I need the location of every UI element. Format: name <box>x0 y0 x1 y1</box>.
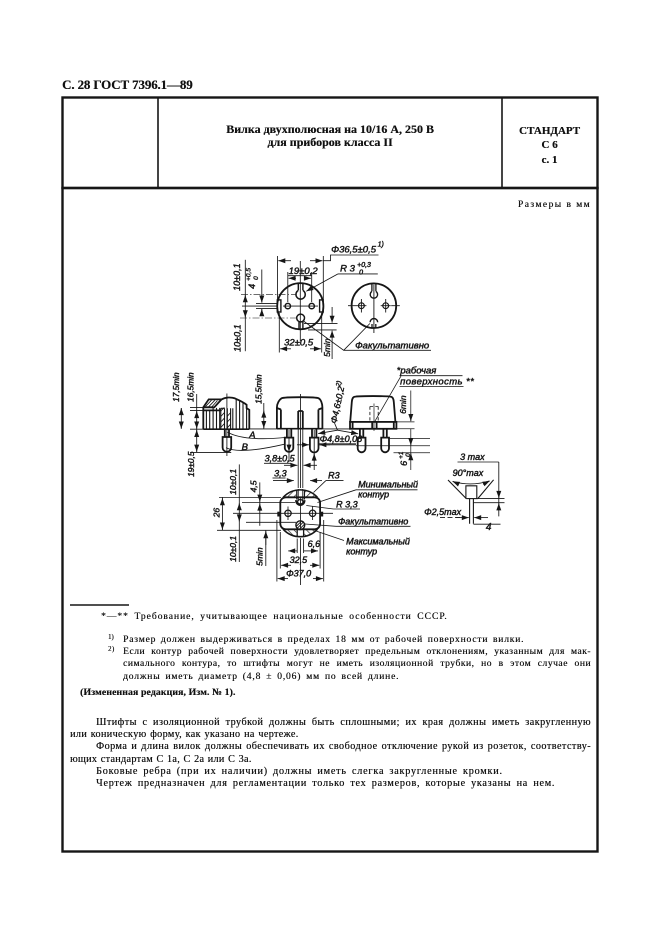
svg-text:Φ37,0: Φ37,0 <box>286 568 311 578</box>
svg-text:Факультативно: Факультативно <box>338 516 408 526</box>
svg-text:+0,5: +0,5 <box>246 268 253 281</box>
svg-text:0: 0 <box>359 270 363 277</box>
svg-text:Φ4,8±0,06: Φ4,8±0,06 <box>320 434 363 444</box>
svg-text:4,5: 4,5 <box>249 480 259 492</box>
svg-text:90°max: 90°max <box>453 468 484 478</box>
svg-text:3 max: 3 max <box>460 452 485 462</box>
svg-text:+1: +1 <box>398 451 405 459</box>
svg-text:контур: контур <box>358 490 389 500</box>
svg-text:6,6: 6,6 <box>308 539 321 549</box>
svg-text:контур: контур <box>346 547 377 557</box>
svg-text:1): 1) <box>378 242 384 249</box>
svg-text:6: 6 <box>399 461 409 466</box>
svg-text:0: 0 <box>253 276 260 280</box>
svg-text:*рабочая: *рабочая <box>397 366 437 377</box>
svg-text:Минимальный: Минимальный <box>358 480 418 490</box>
svg-text:5min: 5min <box>322 338 332 357</box>
svg-text:19±0,2: 19±0,2 <box>289 266 319 277</box>
svg-text:17,5min: 17,5min <box>171 372 181 402</box>
svg-text:16,5min: 16,5min <box>186 372 196 402</box>
svg-text:A: A <box>248 430 255 441</box>
svg-text:10±0,1: 10±0,1 <box>233 325 243 352</box>
svg-text:Φ4,6±0,2: Φ4,6±0,2 <box>329 386 347 425</box>
svg-text:2): 2) <box>335 380 343 388</box>
svg-text:0: 0 <box>405 453 412 457</box>
svg-text:19±0,5: 19±0,5 <box>186 451 196 477</box>
svg-text:Максимальный: Максимальный <box>346 537 410 547</box>
svg-text:4: 4 <box>486 522 492 533</box>
svg-text:4: 4 <box>247 284 257 289</box>
svg-text:Факультативно: Факультативно <box>355 340 429 351</box>
svg-text:Φ2,5max: Φ2,5max <box>424 507 462 517</box>
svg-text:10±0,1: 10±0,1 <box>228 469 238 495</box>
svg-text:3,3: 3,3 <box>274 469 287 479</box>
svg-text:10±0,1: 10±0,1 <box>228 536 238 562</box>
svg-text:R3: R3 <box>328 471 340 481</box>
svg-text:+0,3: +0,3 <box>357 262 371 269</box>
svg-text:15,5min: 15,5min <box>254 374 264 404</box>
svg-text:поверхность **: поверхность ** <box>400 377 474 388</box>
svg-text:R 3,3: R 3,3 <box>336 500 358 510</box>
svg-text:R 3: R 3 <box>340 264 356 275</box>
svg-text:5min: 5min <box>255 547 265 566</box>
svg-text:32,5: 32,5 <box>290 555 309 565</box>
svg-text:Φ36,5±0,5: Φ36,5±0,5 <box>331 245 377 256</box>
svg-text:6min: 6min <box>398 395 408 414</box>
svg-text:B: B <box>242 442 249 453</box>
svg-text:10±0,1: 10±0,1 <box>232 264 242 291</box>
svg-text:26: 26 <box>212 508 222 519</box>
svg-text:32±0,5: 32±0,5 <box>284 338 314 349</box>
svg-text:3,8±0,5: 3,8±0,5 <box>265 454 296 464</box>
